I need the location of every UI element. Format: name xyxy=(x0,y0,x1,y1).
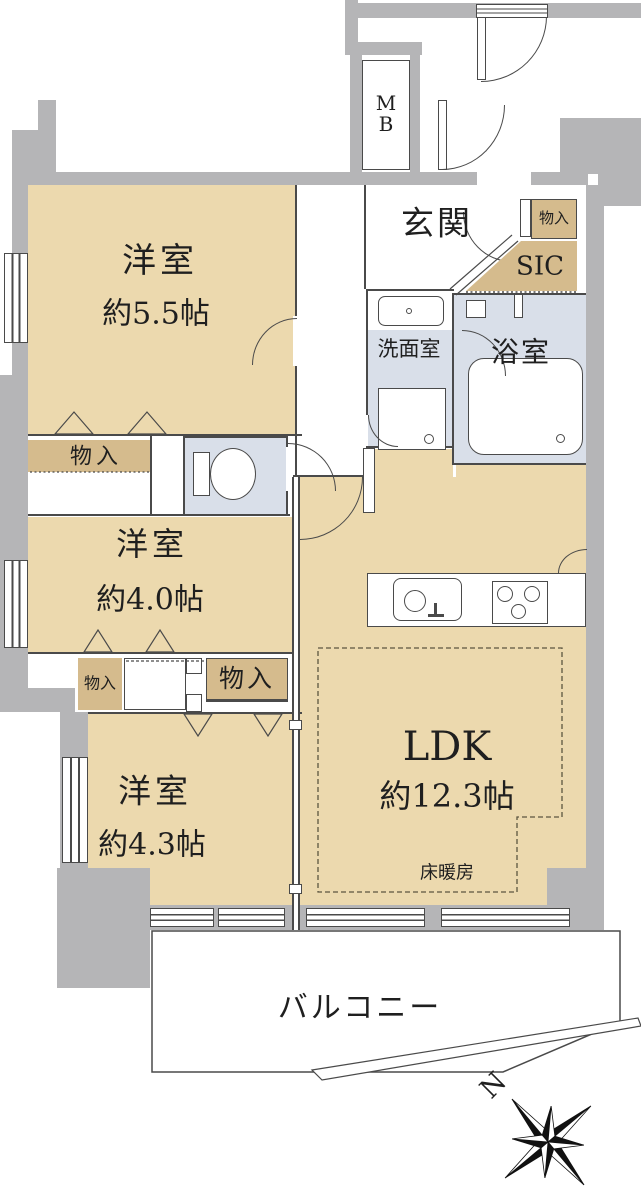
closet-door-mark xyxy=(146,630,174,652)
closet-door-mark xyxy=(84,630,112,652)
closet2a-label: 物入 xyxy=(84,676,116,693)
bedroom3-size: 約4.3帖 xyxy=(98,829,206,861)
sic-label: SIC xyxy=(516,253,564,280)
floor-plan: 洋室 約5.5帖 玄関 物入 SIC 洗面室 浴室 物入 洋室 約4.0帖 物入… xyxy=(0,0,641,1200)
closet-door-mark xyxy=(254,714,282,736)
ldk-size: 約12.3帖 xyxy=(379,780,514,814)
closet-door-mark xyxy=(128,412,166,434)
washroom-label: 洗面室 xyxy=(378,338,441,360)
closet2c-label: 物入 xyxy=(219,666,275,692)
entrance-label: 玄関 xyxy=(401,207,473,242)
floor-heating-label: 床暖房 xyxy=(420,865,474,884)
bedroom1-label: 洋室 xyxy=(122,244,198,280)
balcony-label: バルコニー xyxy=(278,992,442,1024)
meter-box-label: MB xyxy=(375,93,397,135)
bedroom2-size: 約4.0帖 xyxy=(96,584,204,616)
closet-door-mark xyxy=(184,714,212,736)
bedroom3-label: 洋室 xyxy=(118,775,192,810)
closet1-label: 物入 xyxy=(70,445,122,468)
bathroom-label: 浴室 xyxy=(491,337,551,366)
entrance-storage-label: 物入 xyxy=(539,211,569,227)
bedroom2-label: 洋室 xyxy=(116,528,188,562)
closet-door-mark xyxy=(55,412,93,434)
bedroom1-size: 約5.5帖 xyxy=(102,298,210,330)
ldk-label: LDK xyxy=(403,726,492,768)
floor-heating-boundary xyxy=(318,648,562,892)
